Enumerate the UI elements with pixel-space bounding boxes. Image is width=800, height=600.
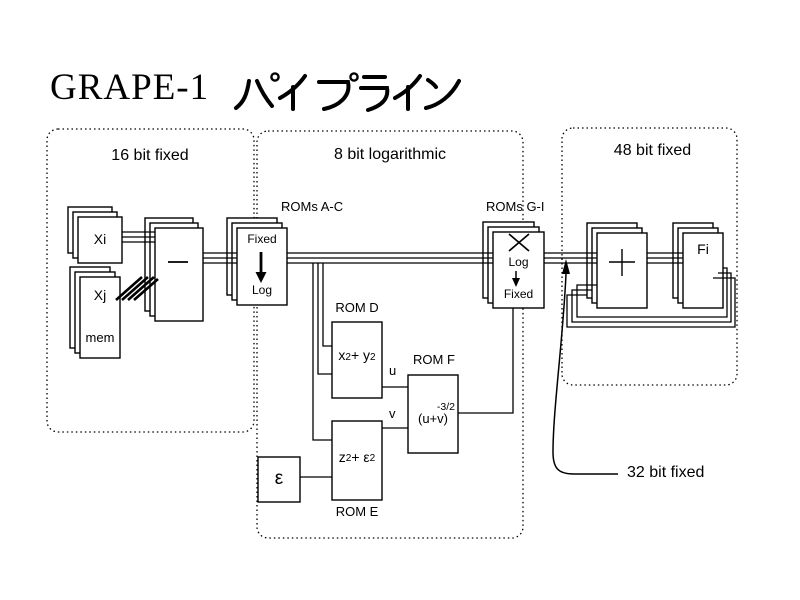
label-roms-gi: ROMs G-I (486, 200, 545, 214)
adder-stack (587, 223, 647, 308)
xj-label: Xj (80, 288, 120, 303)
epsilon-label: ε (258, 457, 300, 502)
grape1-pipeline-diagram: GRAPE-1 16 bit fixed 8 bit logarithmic 4… (0, 0, 800, 600)
bus-log-main (287, 253, 493, 263)
xi-label: Xi (78, 217, 122, 263)
fi-label: Fi (683, 242, 723, 257)
label-32bit-fixed: 32 bit fixed (627, 464, 704, 482)
mem-label: mem (78, 331, 122, 345)
wire-y-to-romd (318, 263, 332, 374)
region-label-8bit-log: 8 bit logarithmic (310, 146, 470, 164)
page-title: GRAPE-1 (50, 66, 461, 114)
romsgi-fixed-label: Fixed (493, 288, 544, 301)
wire-x-to-romd (323, 263, 332, 346)
label-roms-ac: ROMs A-C (281, 200, 343, 214)
region-label-16bit: 16 bit fixed (90, 147, 210, 165)
label-v: v (389, 407, 396, 421)
wire-romf-to-romsgi (458, 308, 513, 413)
region-label-48bit: 48 bit fixed (595, 142, 710, 160)
subtractor-stack (145, 218, 203, 321)
romf-formula: -3/2 (u+v) (408, 385, 458, 443)
title-latin: GRAPE-1 (50, 66, 209, 109)
label-rom-e: ROM E (332, 505, 382, 519)
label-rom-f: ROM F (408, 353, 460, 367)
label-u: u (389, 364, 396, 378)
rome-formula: z2+ ε2 (332, 418, 382, 497)
romsgi-log-label: Log (493, 256, 544, 269)
label-rom-d: ROM D (332, 301, 382, 315)
romsac-fixed-label: Fixed (237, 233, 287, 246)
romd-formula: x2+ y2 (332, 318, 382, 394)
fi-accumulator-stack (673, 223, 723, 308)
title-katakana-pipeline (225, 68, 461, 114)
romsac-log-label: Log (237, 284, 287, 297)
